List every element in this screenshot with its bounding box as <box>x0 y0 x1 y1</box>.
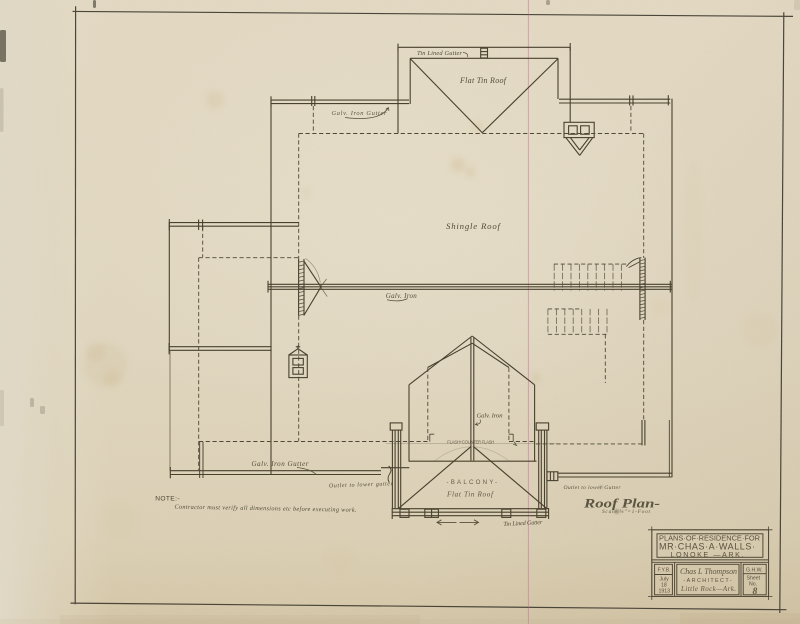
svg-text:G.H.W.: G.H.W. <box>746 567 763 573</box>
svg-text:8: 8 <box>753 586 758 597</box>
svg-text:Galv. Iron: Galv. Iron <box>386 292 418 300</box>
svg-text:Shingle Roof: Shingle Roof <box>446 221 502 231</box>
svg-text:Scale ¼"=1-Foot: Scale ¼"=1-Foot <box>602 509 651 515</box>
svg-text:FLASH+COUNTER FLASH: FLASH+COUNTER FLASH <box>447 440 494 445</box>
svg-text:Chas L Thompson: Chas L Thompson <box>680 567 737 576</box>
svg-text:Little Rock—Ark.: Little Rock—Ark. <box>680 585 736 593</box>
svg-text:Outlet to lower Gutter: Outlet to lower Gutter <box>564 485 622 491</box>
svg-text:1913: 1913 <box>659 589 671 595</box>
svg-text:Galv. Iron Gutter: Galv. Iron Gutter <box>252 460 309 468</box>
svg-text:Galv. Iron: Galv. Iron <box>477 413 504 420</box>
svg-text:Flat Tin Roof: Flat Tin Roof <box>446 490 494 498</box>
svg-text:Tin Lined Gutter: Tin Lined Gutter <box>417 50 463 57</box>
svg-text:-ARCHITECT-: -ARCHITECT- <box>684 578 732 584</box>
svg-text:-BALCONY-: -BALCONY- <box>447 479 499 486</box>
svg-text:Flat Tin Roof: Flat Tin Roof <box>459 76 508 85</box>
svg-text:18: 18 <box>661 582 667 588</box>
svg-text:F.Y.B.: F.Y.B. <box>658 567 671 573</box>
svg-text:NOTE:-: NOTE:- <box>155 496 180 503</box>
svg-text:LONOKE —ARK.: LONOKE —ARK. <box>671 550 744 559</box>
